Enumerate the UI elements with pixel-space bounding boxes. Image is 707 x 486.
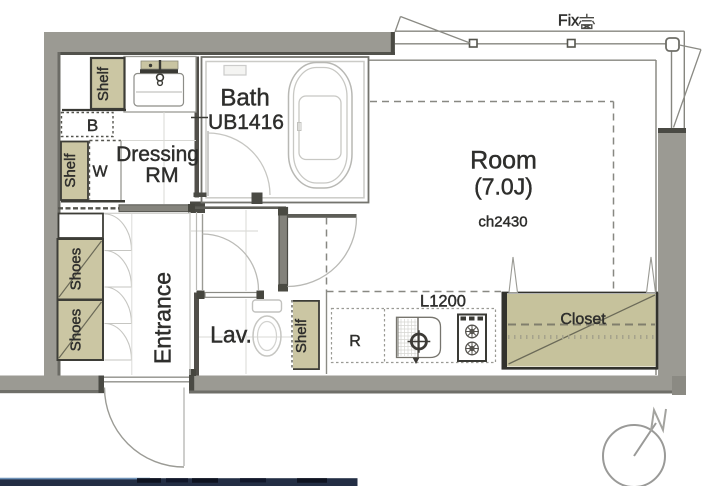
svg-text:(7.0J): (7.0J) [474, 174, 533, 200]
svg-text:Fix: Fix [558, 13, 579, 30]
svg-text:Shelf: Shelf [95, 66, 112, 101]
svg-text:ch2430: ch2430 [478, 214, 527, 231]
svg-text:Shoes: Shoes [68, 248, 85, 291]
svg-text:B: B [87, 116, 98, 135]
svg-text:Room: Room [470, 147, 537, 175]
svg-text:Shelf: Shelf [62, 153, 79, 188]
svg-text:Lav.: Lav. [210, 322, 252, 348]
svg-text:RM: RM [145, 163, 178, 187]
svg-text:Entrance: Entrance [150, 272, 176, 364]
svg-text:UB1416: UB1416 [208, 111, 284, 134]
svg-text:Shelf: Shelf [293, 318, 310, 353]
svg-text:R: R [349, 333, 361, 350]
svg-text:W: W [92, 164, 108, 181]
svg-text:Closet: Closet [560, 311, 606, 328]
svg-text:Bath: Bath [220, 85, 269, 112]
svg-text:L1200: L1200 [420, 293, 466, 311]
svg-text:Shoes: Shoes [68, 309, 85, 352]
